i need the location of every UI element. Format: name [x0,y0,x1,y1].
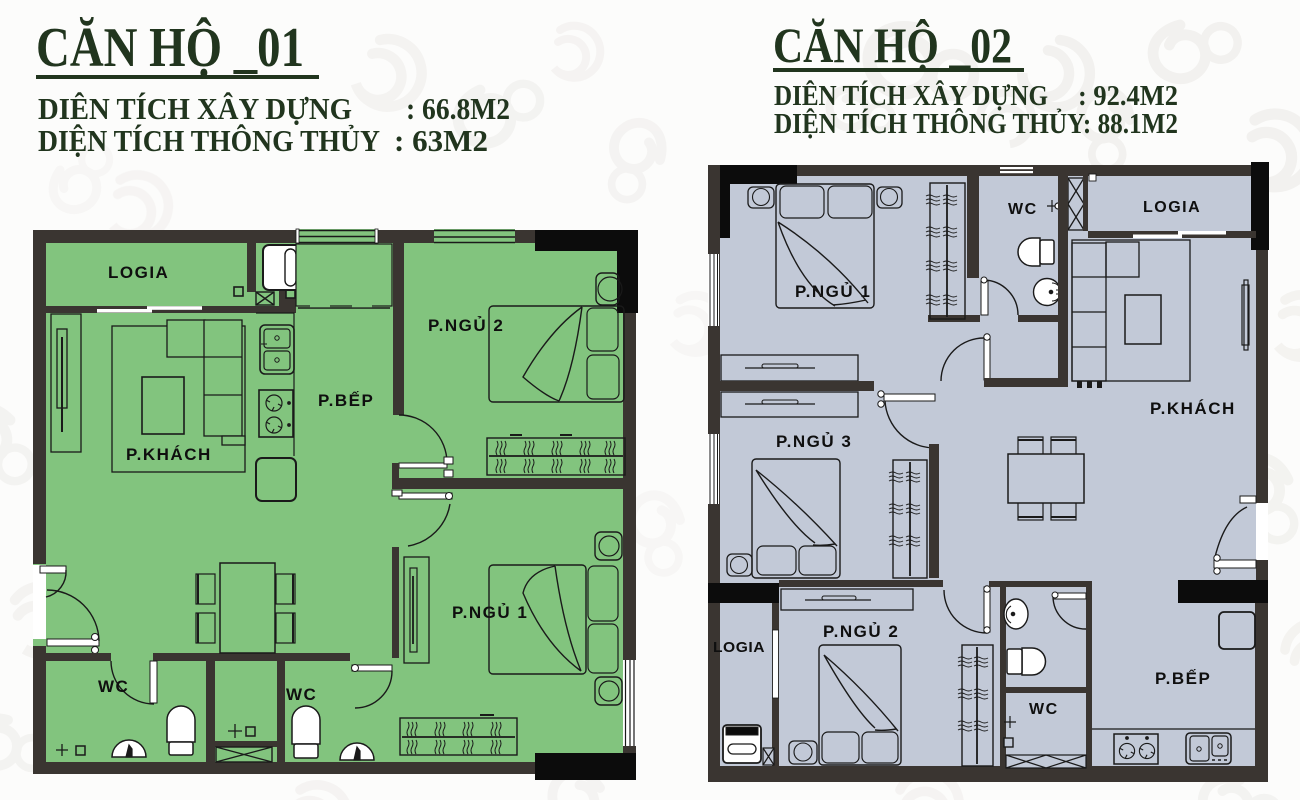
svg-text:LOGIA: LOGIA [1143,199,1201,216]
svg-text:WC: WC [98,677,129,696]
svg-text:WC: WC [1008,201,1038,218]
svg-text:DIỆN TÍCH THÔNG THỦY: 88.1M2: DIỆN TÍCH THÔNG THỦY: 88.1M2 [774,109,1178,140]
svg-text:: 63M2: : 63M2 [394,123,488,158]
svg-text:P.NGỦ 1: P.NGỦ 1 [452,603,528,622]
svg-text:P.BẾP: P.BẾP [318,391,374,410]
svg-text:P.KHÁCH: P.KHÁCH [1150,399,1236,418]
svg-text:WC: WC [286,685,317,704]
svg-text:P.NGỦ 2: P.NGỦ 2 [823,622,899,641]
svg-text:DIÊN TÍCH XÂY DỰNG: DIÊN TÍCH XÂY DỰNG [774,81,1048,112]
svg-text:CĂN HỘ _02: CĂN HỘ _02 [773,17,1012,73]
svg-text:DIÊN TÍCH XÂY DỰNG: DIÊN TÍCH XÂY DỰNG [38,91,352,126]
svg-text:: 92.4M2: : 92.4M2 [1078,81,1178,112]
svg-text:P.NGỦ 1: P.NGỦ 1 [795,282,871,301]
svg-text:LOGIA: LOGIA [108,263,169,282]
svg-text:P.NGỦ 3: P.NGỦ 3 [776,432,852,451]
svg-text:P.KHÁCH: P.KHÁCH [126,445,212,464]
svg-text:DIỆN TÍCH THÔNG THỦY: DIỆN TÍCH THÔNG THỦY [38,123,380,158]
svg-text:P.NGỦ 2: P.NGỦ 2 [428,316,504,335]
svg-text:WC: WC [1029,701,1059,718]
svg-text:CĂN HỘ _01: CĂN HỘ _01 [36,16,304,79]
svg-text:LOGIA: LOGIA [713,639,765,656]
svg-text:P.BẾP: P.BẾP [1155,669,1211,688]
svg-text:: 66.8M2: : 66.8M2 [406,91,510,126]
